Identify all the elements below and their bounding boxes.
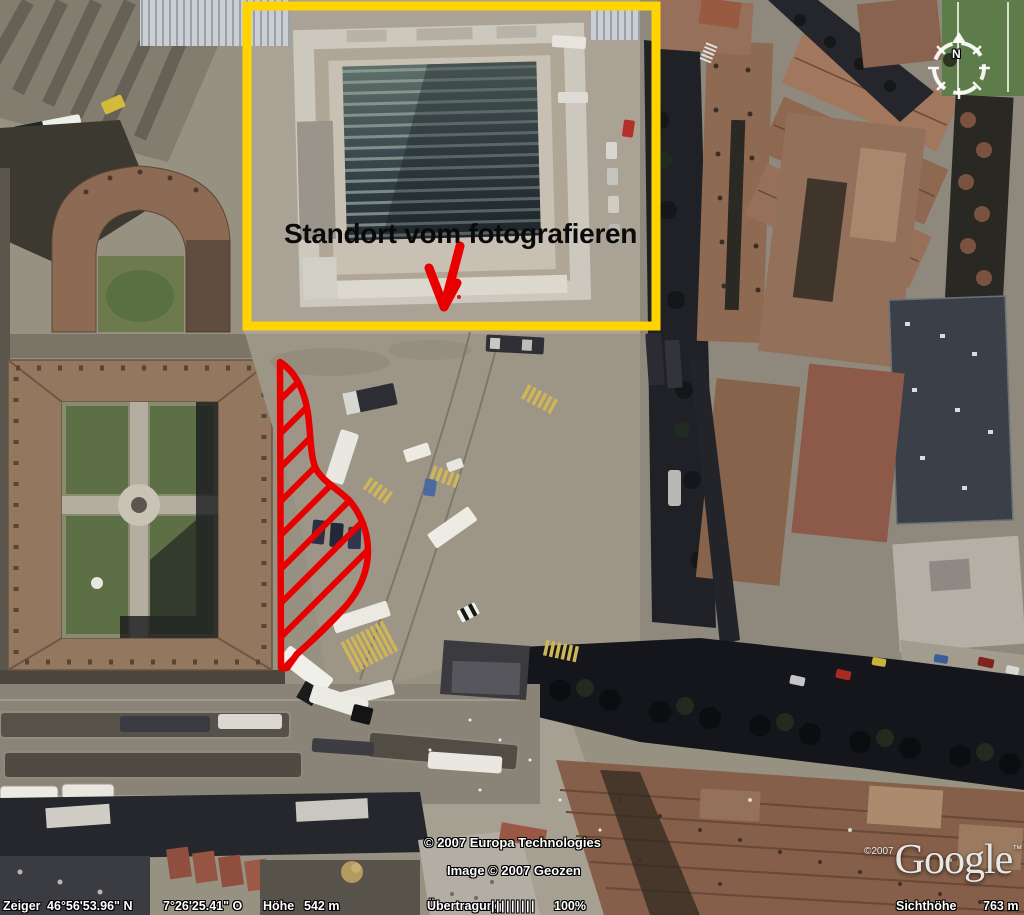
glass-roof-building: [292, 22, 591, 308]
parliament-building: [8, 360, 272, 670]
altitude-label: Höhe: [263, 899, 294, 913]
logo-trademark: ™: [1012, 844, 1022, 855]
eye-altitude-value: 763 m: [983, 899, 1018, 913]
city-blocks-right: [640, 0, 1024, 700]
street-bottom-left: [0, 684, 540, 804]
tram-shelter: [440, 640, 530, 700]
pointer-latitude: 46°56'53.96" N: [47, 899, 133, 913]
copyright-line-1: © 2007 Europa Technologies: [424, 835, 601, 850]
satellite-imagery: [0, 0, 1024, 915]
streaming-percent: 100%: [554, 899, 586, 913]
pointer-label: Zeiger: [3, 899, 41, 913]
streaming-progress-bars: |||||||||: [491, 899, 536, 913]
pointer-longitude: 7°26'25.41" O: [163, 899, 242, 913]
compass-north-label: N: [952, 47, 961, 61]
annotation-label: Standort vom fotografieren: [284, 218, 637, 250]
eye-altitude-label: Sichthöhe: [896, 899, 956, 913]
google-logo-watermark: ©2007 Google ™: [864, 838, 1022, 882]
altitude-value: 542 m: [304, 899, 339, 913]
google-earth-viewport[interactable]: Standort vom fotografieren N © 2007 Euro…: [0, 0, 1024, 915]
copyright-line-2: Image © 2007 Geozen: [447, 863, 581, 878]
status-bar: Zeiger 46°56'53.96" N 7°26'25.41" O Höhe…: [0, 895, 1024, 915]
logo-copyright-year: ©2007: [864, 846, 894, 857]
logo-text: Google: [895, 838, 1013, 882]
